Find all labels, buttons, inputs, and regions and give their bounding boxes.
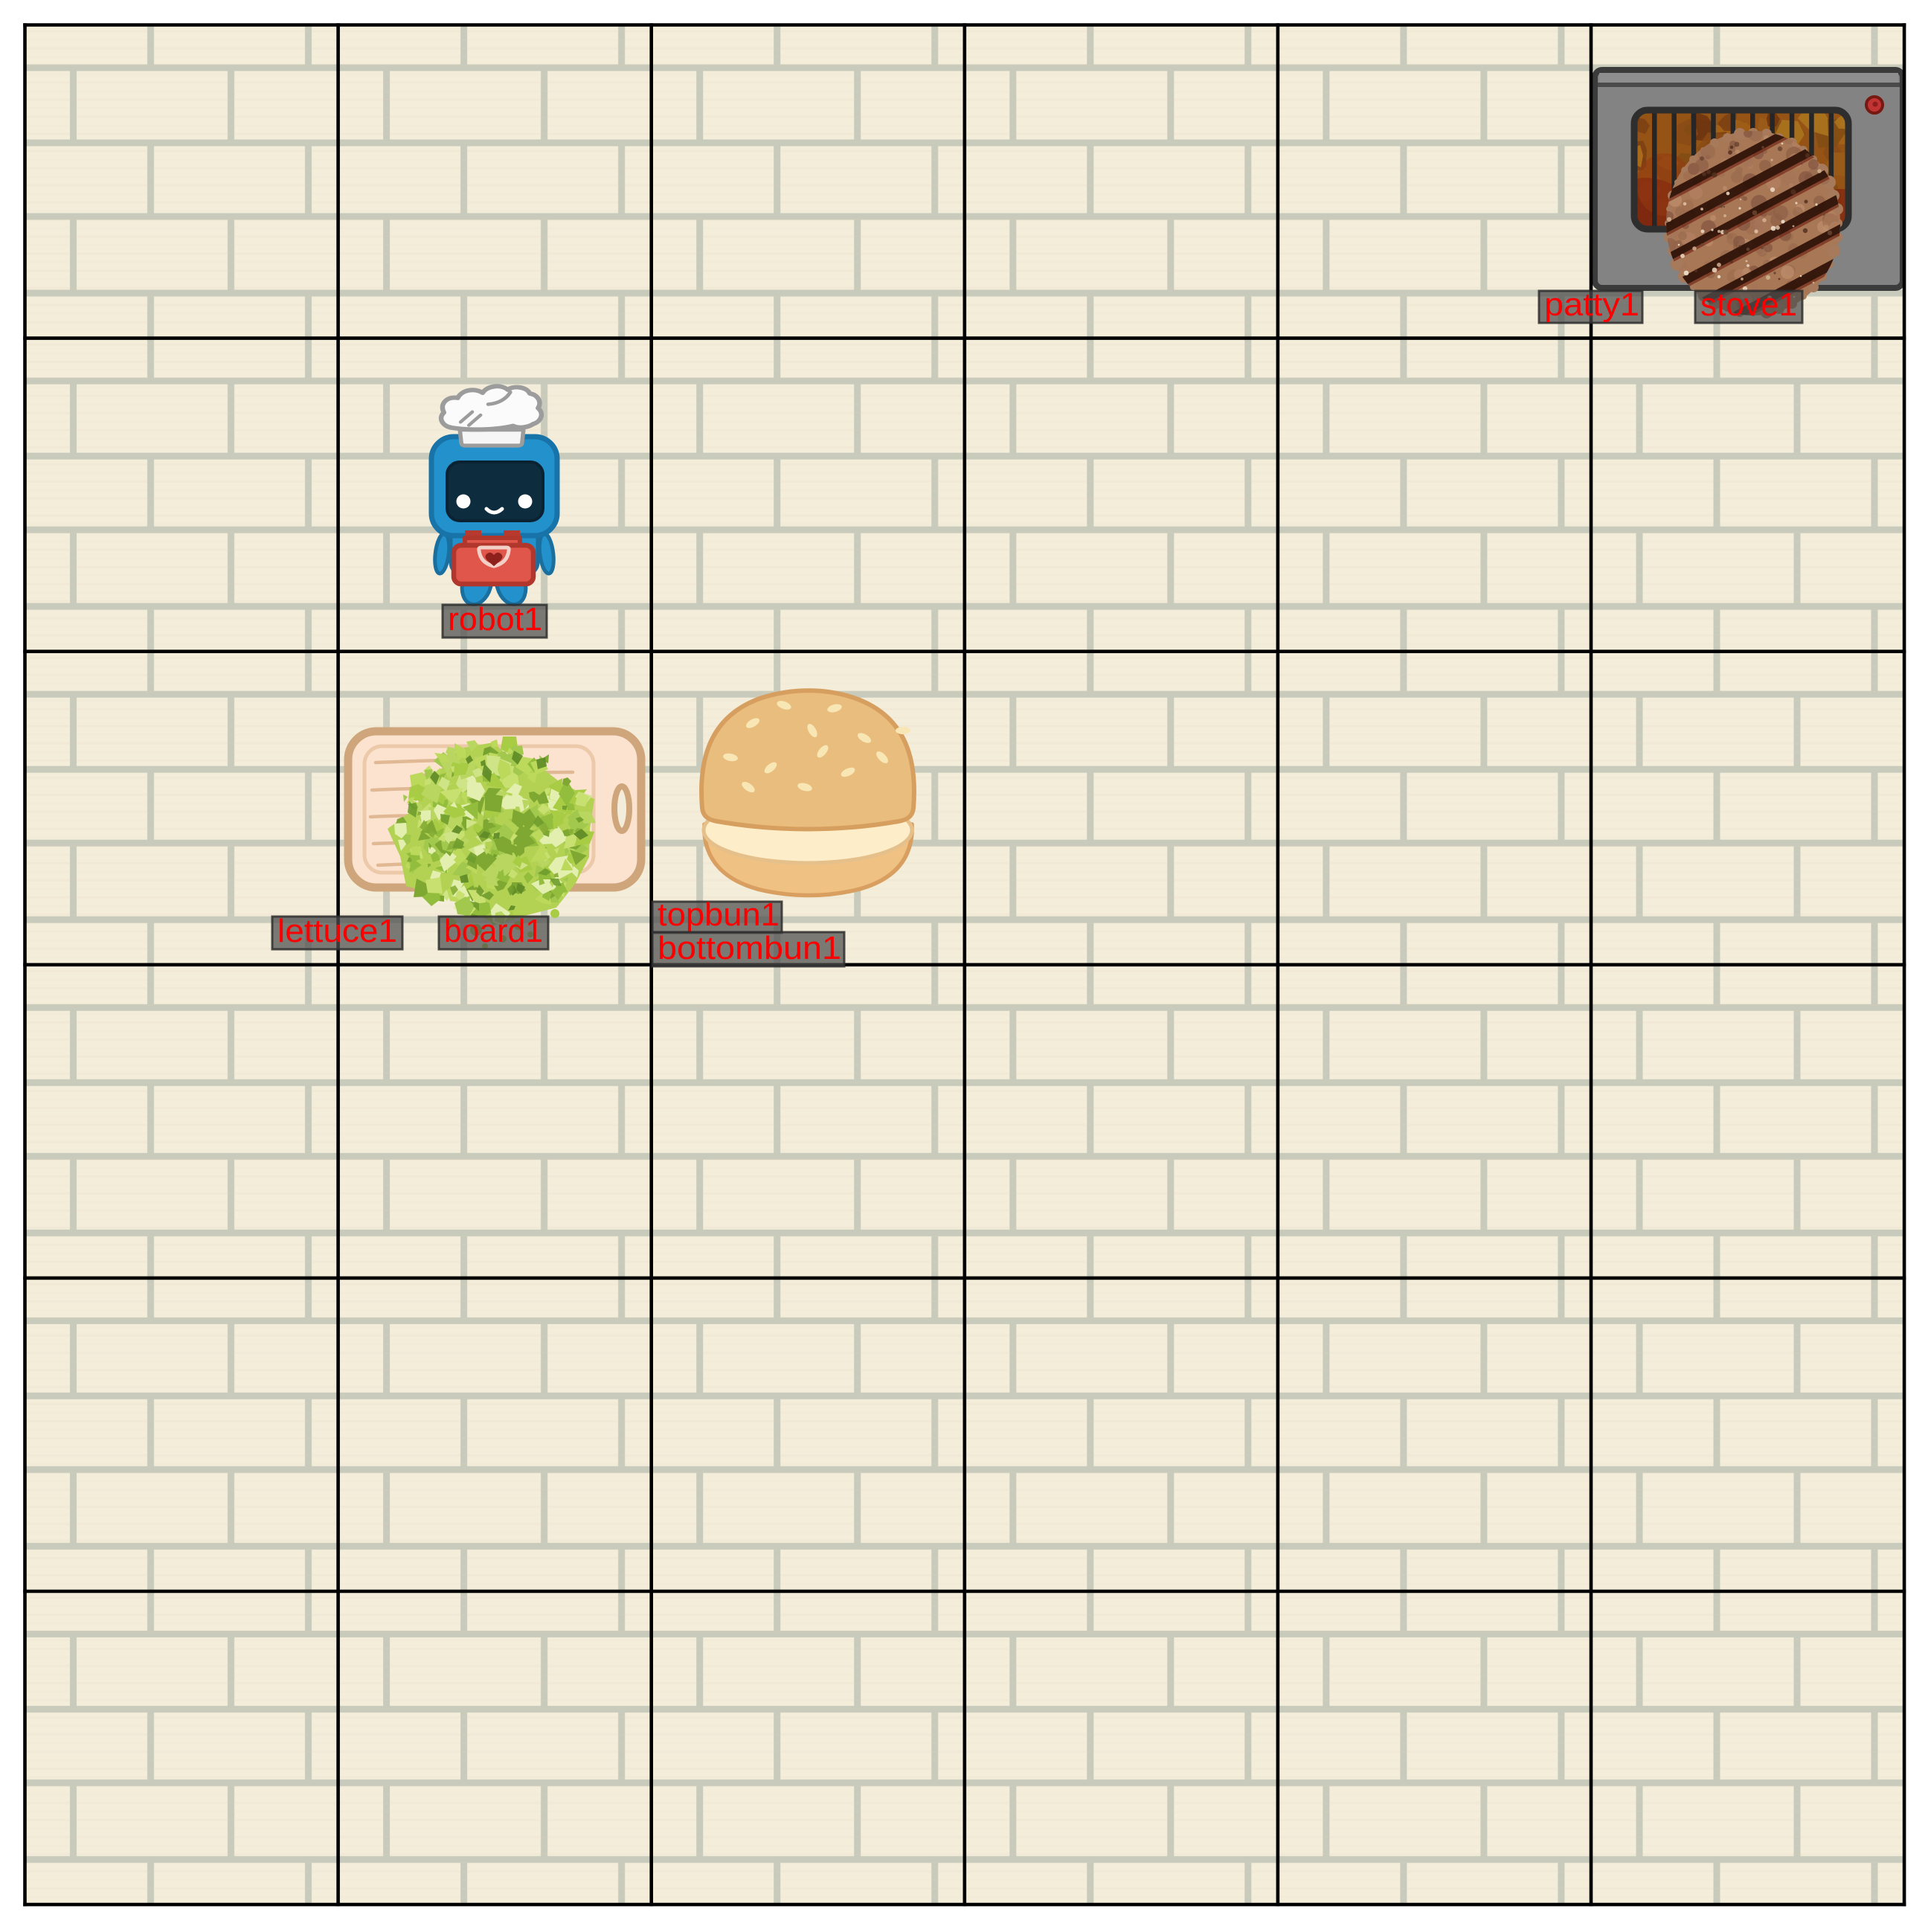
svg-text:robot1: robot1 — [448, 601, 542, 638]
svg-text:lettuce1: lettuce1 — [277, 913, 397, 949]
svg-text:stove1: stove1 — [1700, 286, 1797, 323]
svg-text:bottombun1: bottombun1 — [658, 930, 841, 966]
svg-text:patty1: patty1 — [1544, 286, 1639, 323]
svg-text:topbun1: topbun1 — [658, 896, 780, 933]
svg-text:board1: board1 — [444, 913, 543, 949]
